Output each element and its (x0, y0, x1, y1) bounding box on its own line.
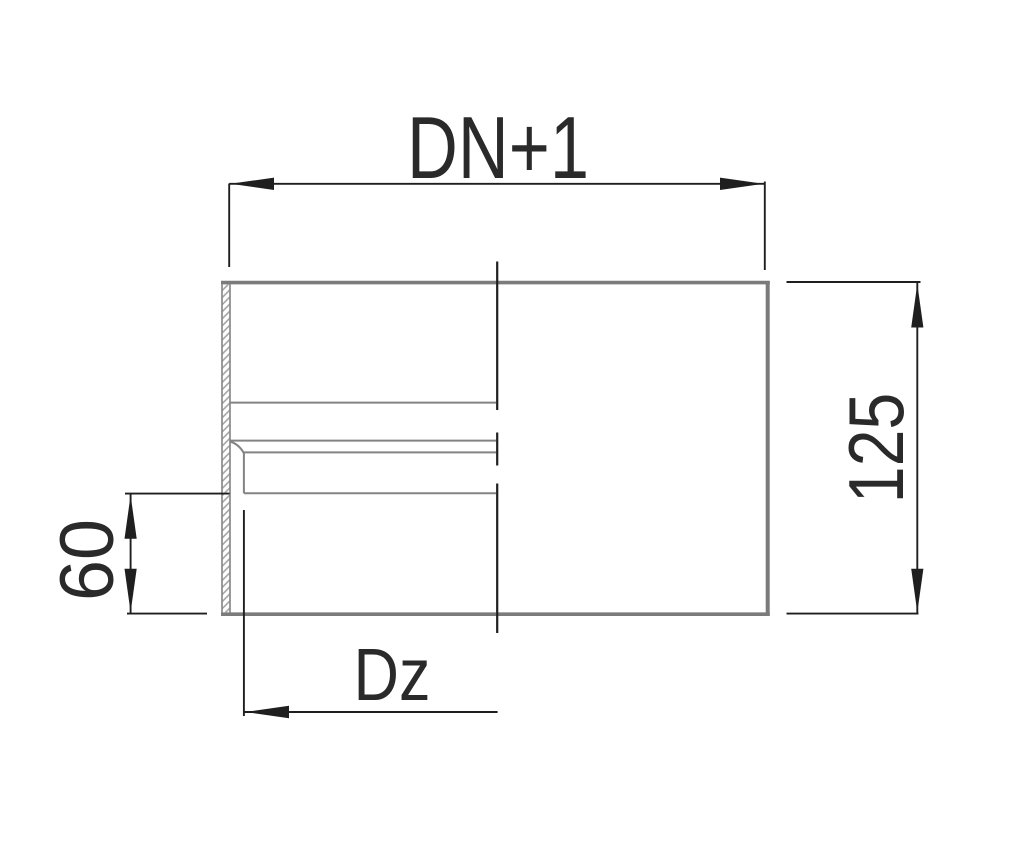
label-overall-width: DN+1 (407, 104, 589, 192)
arrowhead-left (231, 178, 275, 190)
arrowhead-left (246, 706, 290, 718)
inner-profile (230, 403, 496, 494)
label-socket-depth: 60 (50, 519, 126, 601)
label-inner-diameter: Dz (354, 638, 431, 712)
label-overall-height: 125 (837, 393, 915, 504)
section-hatch (223, 284, 230, 613)
section-wall (222, 284, 230, 614)
dimension-socket-depth (125, 494, 230, 614)
drawing-canvas: DN+1 125 60 Dz (0, 0, 1017, 841)
arrowhead-up (911, 284, 923, 328)
arrowhead-right (720, 178, 764, 190)
inner-lip-curve (230, 442, 244, 454)
arrowhead-down (911, 569, 923, 613)
part-outline (221, 281, 770, 616)
